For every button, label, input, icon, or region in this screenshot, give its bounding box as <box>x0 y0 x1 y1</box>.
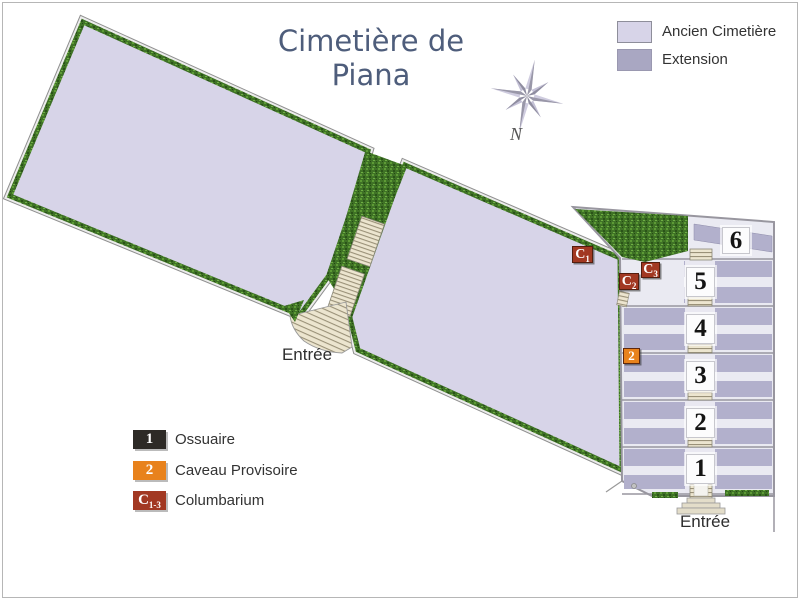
section-plate-3: 3 <box>686 361 715 391</box>
ossuaire-label: Ossuaire <box>175 430 375 449</box>
columbarium-symbol-text: C <box>138 492 149 508</box>
page-title-line1: Cimetière de <box>221 24 521 58</box>
marker-caveau-main: 2 <box>628 348 635 363</box>
extension-label: Extension <box>662 49 800 71</box>
caveau-symbol: 2 <box>133 461 166 480</box>
section-plate-2: 2 <box>686 408 715 438</box>
extension-entrance-label: Entrée <box>650 512 760 532</box>
columbarium-marker-c2: C2 <box>619 273 639 290</box>
section-plate-6: 6 <box>722 227 750 254</box>
ossuaire-symbol-text: 1 <box>146 431 154 447</box>
columbarium-marker-c3: C3 <box>641 262 660 278</box>
marker-c2-sub: 2 <box>632 281 637 291</box>
marker-c2-main: C <box>622 274 632 289</box>
marker-c1-main: C <box>575 247 585 262</box>
caveau-symbol-text: 2 <box>146 462 154 478</box>
marker-c3-main: C <box>643 262 653 277</box>
columbarium-label: Columbarium <box>175 491 375 510</box>
columbarium-symbol: C1-3 <box>133 491 166 510</box>
caveau-label: Caveau Provisoire <box>175 461 375 480</box>
section-plate-1: 1 <box>686 454 715 484</box>
columbarium-symbol-sub: 1-3 <box>149 500 161 510</box>
caveau-provisoire-marker: 2 <box>623 348 640 364</box>
old-entrance-label: Entrée <box>252 345 362 365</box>
compass-north-label: N <box>503 124 529 145</box>
marker-c3-sub: 3 <box>653 269 658 279</box>
extension-swatch <box>617 49 652 71</box>
columbarium-marker-c1: C1 <box>572 246 593 263</box>
ancien-swatch <box>617 21 652 43</box>
section-plate-4: 4 <box>686 314 715 344</box>
page-title: Cimetière de Piana <box>221 24 521 92</box>
cemetery-map-page: Cimetière de Piana N Ancien Cimetière Ex… <box>0 0 800 600</box>
ancien-label: Ancien Cimetière <box>662 21 800 43</box>
ossuaire-symbol: 1 <box>133 430 166 449</box>
marker-c1-sub: 1 <box>585 254 590 264</box>
section-plate-5: 5 <box>686 267 715 297</box>
page-title-line2: Piana <box>221 58 521 92</box>
